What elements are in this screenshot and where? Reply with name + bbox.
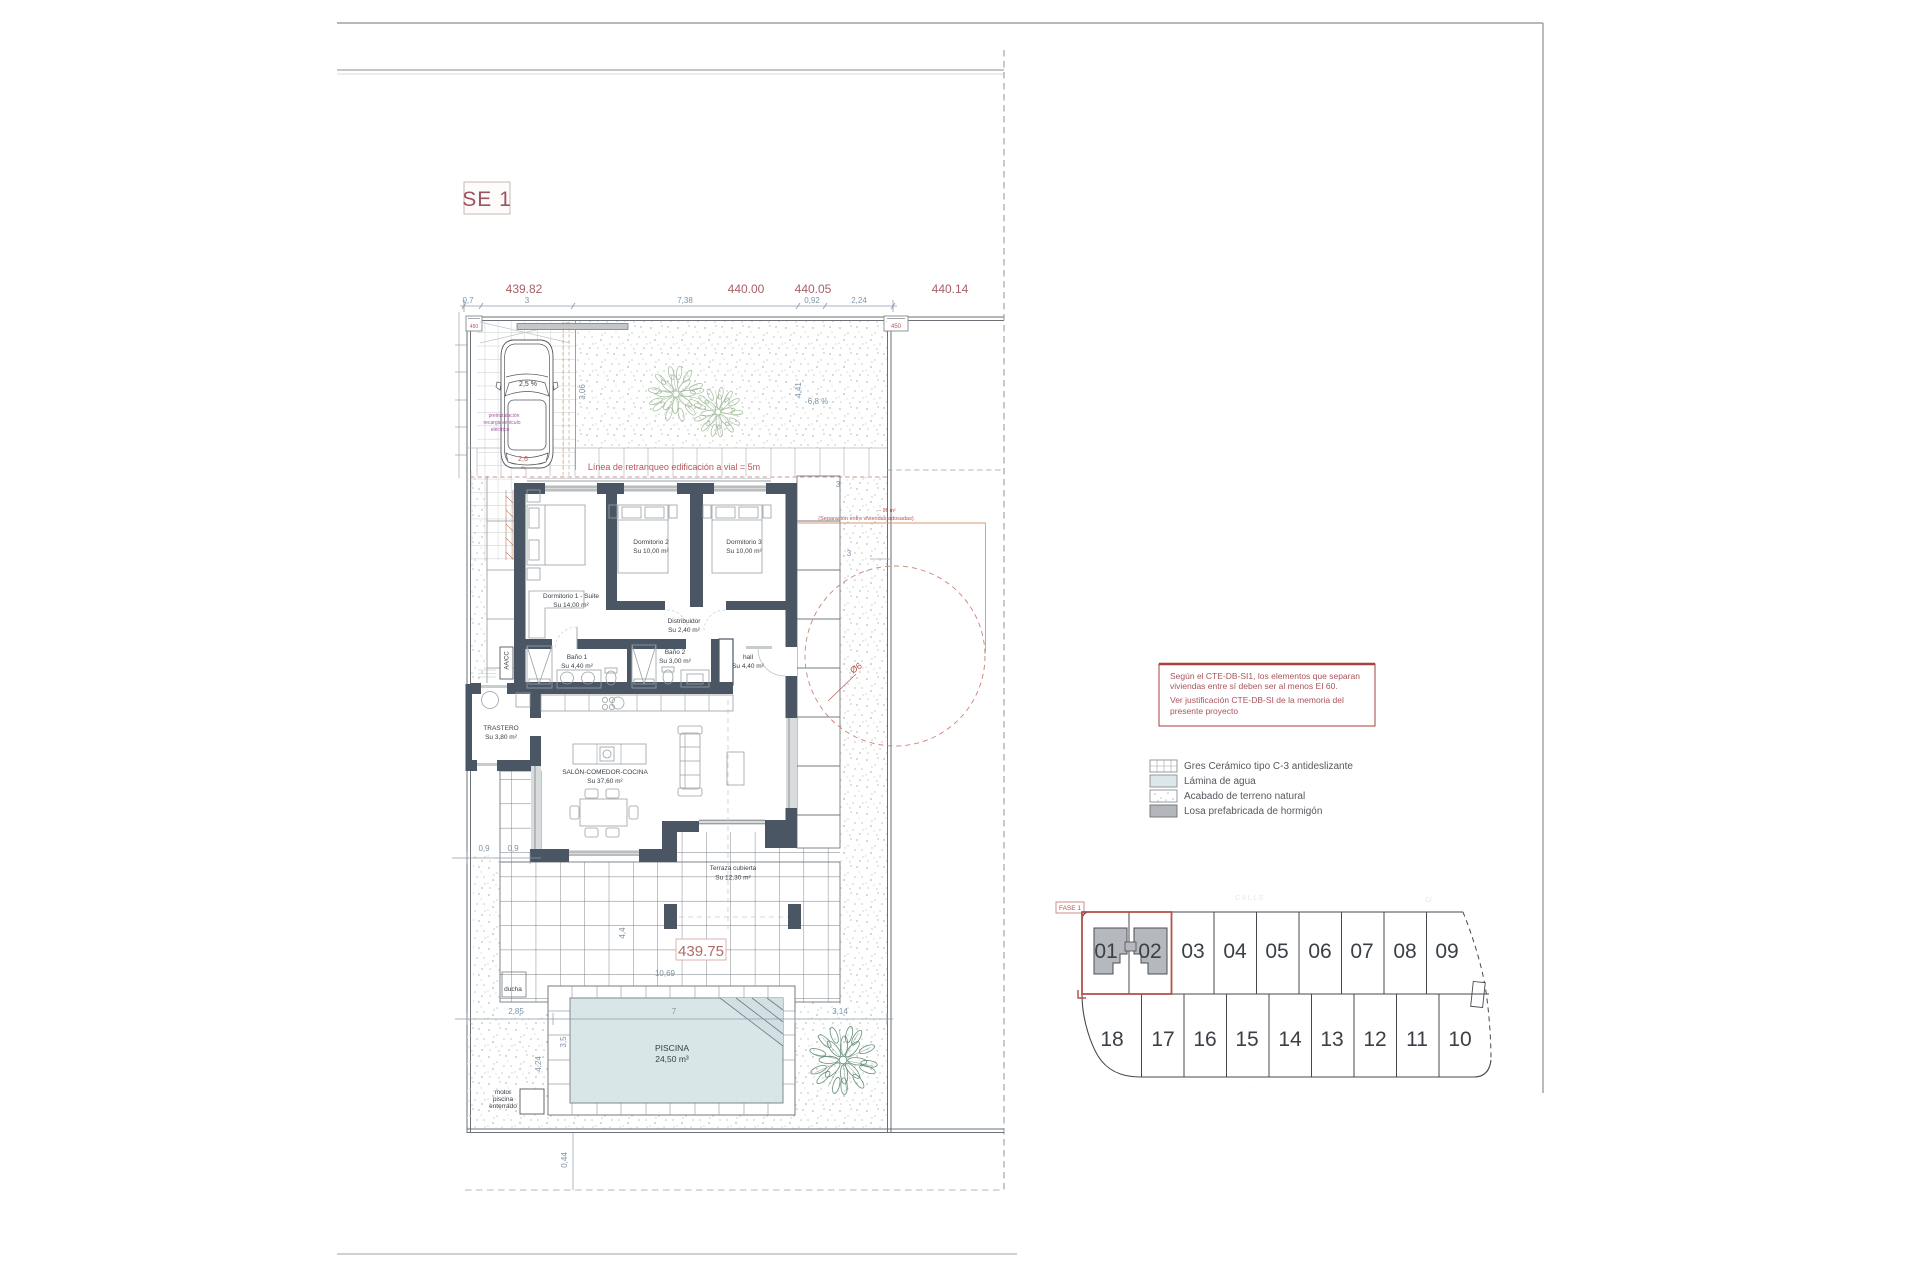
- svg-text:4,24: 4,24: [534, 1056, 543, 1072]
- svg-text:m: m: [521, 465, 525, 470]
- svg-text:0,7: 0,7: [462, 296, 474, 305]
- svg-text:preinstalación: preinstalación: [489, 413, 520, 419]
- svg-text:15: 15: [1235, 1028, 1258, 1051]
- svg-text:. . . .: . . . .: [1245, 1082, 1259, 1089]
- svg-text:440.05: 440.05: [795, 282, 832, 296]
- svg-text:FASE 1: FASE 1: [1059, 905, 1081, 912]
- svg-text:presente proyecto: presente proyecto: [1170, 706, 1238, 716]
- svg-text:SE 1: SE 1: [462, 188, 512, 211]
- svg-text:Baño 1: Baño 1: [567, 654, 588, 661]
- svg-text:4,41: 4,41: [794, 382, 803, 398]
- svg-text:2,24: 2,24: [851, 296, 867, 305]
- svg-text:C/: C/: [1425, 897, 1432, 904]
- svg-text:Su 12,30 m²: Su 12,30 m²: [715, 875, 751, 882]
- svg-text:440.14: 440.14: [932, 282, 969, 296]
- svg-text:439.75: 439.75: [678, 943, 724, 960]
- svg-text:Dormitorio 3: Dormitorio 3: [726, 539, 762, 546]
- svg-text:SALÓN-COMEDOR-COCINA: SALÓN-COMEDOR-COCINA: [562, 767, 648, 776]
- svg-text:06: 06: [1308, 940, 1331, 963]
- svg-text:C A L L E: C A L L E: [1235, 895, 1264, 902]
- svg-text:eléctrico: eléctrico: [491, 427, 510, 433]
- svg-text:14: 14: [1278, 1028, 1302, 1051]
- svg-text:0,92: 0,92: [804, 296, 820, 305]
- svg-text:-- 95 m²: -- 95 m²: [878, 508, 896, 514]
- svg-text:02: 02: [1138, 940, 1161, 963]
- svg-text:PISCINA: PISCINA: [655, 1043, 689, 1053]
- svg-text:Su 4,40 m²: Su 4,40 m²: [732, 663, 765, 670]
- svg-text:11: 11: [1406, 1028, 1428, 1051]
- svg-text:Gres Cerámico tipo C-3 antides: Gres Cerámico tipo C-3 antideslizante: [1184, 761, 1353, 772]
- svg-text:Su 14,00 m²: Su 14,00 m²: [553, 602, 589, 609]
- svg-text:0,9: 0,9: [478, 844, 490, 853]
- svg-text:Baño 2: Baño 2: [665, 649, 686, 656]
- svg-text:24,50 m³: 24,50 m³: [655, 1054, 689, 1064]
- svg-text:3: 3: [847, 549, 852, 558]
- svg-text:3,5: 3,5: [559, 1036, 568, 1048]
- svg-text:12: 12: [1363, 1028, 1386, 1051]
- svg-text:10,69: 10,69: [655, 969, 676, 978]
- svg-text:7,38: 7,38: [677, 296, 693, 305]
- svg-text:(Separación entre viviendas ad: (Separación entre viviendas adosadas): [818, 516, 914, 522]
- svg-text:4,4: 4,4: [618, 927, 627, 939]
- svg-text:17: 17: [1151, 1028, 1174, 1051]
- svg-text:ducha: ducha: [504, 986, 522, 993]
- svg-text:439.82: 439.82: [506, 282, 543, 296]
- svg-text:Según el CTE-DB-SI1, los eleme: Según el CTE-DB-SI1, los elementos que s…: [1170, 671, 1360, 681]
- svg-text:04: 04: [1223, 940, 1247, 963]
- svg-text:6,8 %: 6,8 %: [808, 397, 828, 406]
- svg-text:TRASTERO: TRASTERO: [483, 725, 518, 732]
- svg-text:enterrado: enterrado: [489, 1103, 517, 1110]
- svg-text:13: 13: [1320, 1028, 1343, 1051]
- svg-text:Lámina de agua: Lámina de agua: [1184, 776, 1256, 787]
- svg-text:18: 18: [1100, 1028, 1123, 1051]
- svg-text:Su 37,60 m²: Su 37,60 m²: [587, 778, 623, 785]
- svg-text:viviendas entre sí deben ser a: viviendas entre sí deben ser al menos EI…: [1170, 681, 1338, 691]
- svg-text:3: 3: [525, 296, 530, 305]
- svg-text:01: 01: [1094, 940, 1117, 963]
- svg-text:05: 05: [1265, 940, 1288, 963]
- svg-text:motor: motor: [495, 1089, 512, 1096]
- svg-text:10: 10: [1448, 1028, 1471, 1051]
- svg-text:Ver justificación CTE-DB-SI de: Ver justificación CTE-DB-SI de la memori…: [1170, 695, 1344, 705]
- svg-text:07: 07: [1350, 940, 1373, 963]
- svg-text:Su 3,80 m²: Su 3,80 m²: [485, 734, 518, 741]
- svg-text:3,06: 3,06: [578, 384, 587, 400]
- svg-text:Terraza cubierta: Terraza cubierta: [710, 865, 757, 872]
- svg-text:3: 3: [836, 480, 841, 489]
- svg-text:450: 450: [891, 324, 902, 330]
- svg-text:09: 09: [1435, 940, 1458, 963]
- svg-text:hall: hall: [743, 654, 754, 661]
- svg-text:piscina: piscina: [493, 1096, 514, 1103]
- svg-text:0,44: 0,44: [560, 1152, 569, 1168]
- svg-text:AA/CC: AA/CC: [505, 651, 511, 670]
- svg-text:Su 2,40 m²: Su 2,40 m²: [668, 627, 701, 634]
- svg-text:08: 08: [1393, 940, 1416, 963]
- svg-text:7: 7: [672, 1007, 677, 1016]
- svg-text:Dormitorio 1 - Suite: Dormitorio 1 - Suite: [543, 593, 599, 600]
- svg-text:Losa prefabricada de hormigón: Losa prefabricada de hormigón: [1184, 806, 1322, 817]
- svg-text:2,85: 2,85: [508, 1007, 524, 1016]
- svg-text:Su 10,00 m²: Su 10,00 m²: [726, 548, 762, 555]
- svg-text:Su 3,00 m²: Su 3,00 m²: [659, 658, 692, 665]
- svg-text:440.00: 440.00: [728, 282, 765, 296]
- svg-text:0,9: 0,9: [507, 844, 519, 853]
- svg-text:Distribuidor: Distribuidor: [668, 618, 702, 625]
- svg-text:2,5 %: 2,5 %: [519, 381, 537, 388]
- svg-text:16: 16: [1193, 1028, 1216, 1051]
- svg-text:2,6: 2,6: [518, 456, 528, 463]
- svg-text:Acabado de terreno natural: Acabado de terreno natural: [1184, 791, 1305, 802]
- svg-text:recarga vehículo: recarga vehículo: [484, 420, 521, 426]
- svg-text:Su 4,40 m²: Su 4,40 m²: [561, 663, 594, 670]
- svg-text:3,14: 3,14: [832, 1007, 848, 1016]
- svg-text:03: 03: [1181, 940, 1204, 963]
- svg-text:Dormitorio 2: Dormitorio 2: [633, 539, 669, 546]
- svg-text:Su 10,00 m²: Su 10,00 m²: [633, 548, 669, 555]
- svg-text:Línea de retranqueo edificació: Línea de retranqueo edificación a vial =…: [588, 462, 760, 472]
